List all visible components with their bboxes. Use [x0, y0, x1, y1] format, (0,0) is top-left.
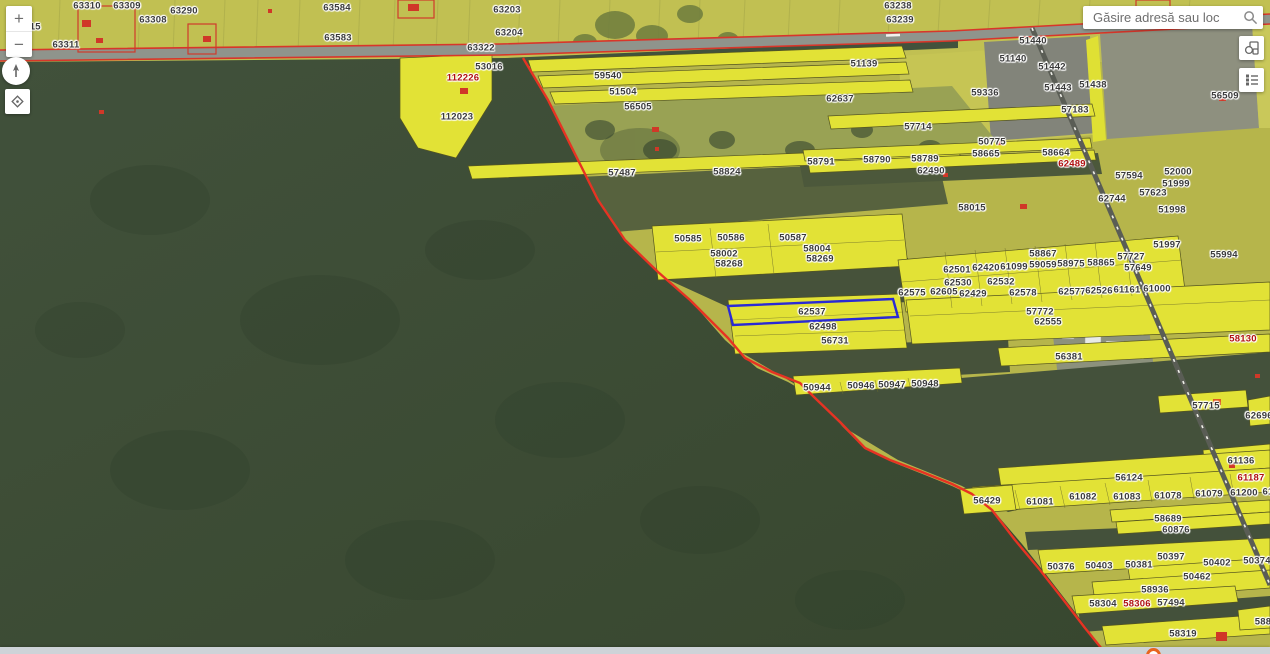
parcel-label[interactable]: 57715 — [1192, 401, 1219, 412]
parcel-label[interactable]: 58867 — [1029, 249, 1056, 260]
parcel-label[interactable]: 61136 — [1228, 456, 1255, 467]
parcel-label[interactable]: 57594 — [1115, 171, 1142, 182]
parcel-label[interactable]: 51504 — [609, 87, 636, 98]
legend-button[interactable] — [1239, 68, 1264, 92]
parcel-label[interactable]: 50944 — [803, 383, 830, 394]
parcel-label[interactable]: 59336 — [971, 88, 998, 99]
parcel-label[interactable]: 58865 — [1087, 258, 1114, 269]
parcel-label[interactable]: 56505 — [624, 102, 651, 113]
parcel-label[interactable]: 58936 — [1141, 585, 1168, 596]
parcel-label[interactable]: 58130 — [1229, 334, 1256, 345]
parcel-label[interactable]: 62420 — [972, 263, 999, 274]
parcel-label[interactable]: 63309 — [113, 1, 140, 12]
parcel-label[interactable]: 58015 — [958, 203, 985, 214]
parcel-label[interactable]: 51440 — [1019, 36, 1046, 47]
parcel-label[interactable]: 63322 — [467, 43, 494, 54]
attribution-bar — [0, 647, 1270, 654]
parcel-label[interactable]: 51443 — [1044, 83, 1071, 94]
parcel-label[interactable]: 58791 — [807, 157, 834, 168]
parcel-label[interactable]: 50947 — [878, 380, 905, 391]
parcel-label[interactable]: 61200 — [1230, 488, 1257, 499]
locate-diamond-icon — [10, 94, 25, 109]
parcel-label[interactable]: 61079 — [1195, 489, 1222, 500]
parcel-label[interactable]: 60876 — [1162, 525, 1189, 536]
parcel-label[interactable]: 58665 — [972, 149, 999, 160]
parcel-label[interactable]: 52000 — [1164, 167, 1191, 178]
parcel-label[interactable]: 55994 — [1210, 250, 1237, 261]
parcel-label[interactable]: 56509 — [1211, 91, 1238, 102]
parcel-label[interactable]: 58789 — [911, 154, 938, 165]
parcel-label[interactable]: 57714 — [904, 122, 931, 133]
parcel-label[interactable]: 51140 — [1000, 54, 1027, 65]
parcel-label[interactable]: 57183 — [1061, 105, 1088, 116]
compass-button[interactable] — [2, 57, 30, 85]
parcel-label[interactable]: 63584 — [323, 3, 350, 14]
parcel-label[interactable]: 58319 — [1169, 629, 1196, 640]
parcel-label[interactable]: 63583 — [324, 33, 351, 44]
parcel-label[interactable]: 57649 — [1124, 263, 1151, 274]
parcel-label[interactable]: 58306 — [1123, 599, 1150, 610]
parcel-label[interactable]: 58975 — [1057, 259, 1084, 270]
parcel-label[interactable]: 588 — [1255, 617, 1270, 628]
parcel-label[interactable]: 62501 — [943, 265, 970, 276]
parcel-label[interactable]: 63238 — [884, 1, 911, 12]
search-button[interactable] — [1237, 6, 1263, 29]
parcel-label[interactable]: 51139 — [851, 59, 878, 70]
zoom-out-button[interactable]: − — [6, 32, 32, 57]
zoom-control: + − — [6, 6, 32, 57]
parcel-label[interactable]: 51438 — [1079, 80, 1106, 91]
parcel-label[interactable]: 62537 — [798, 307, 825, 318]
parcel-label[interactable]: 59540 — [594, 71, 621, 82]
parcel-label[interactable]: 63204 — [495, 28, 522, 39]
parcel-label[interactable]: 57727 — [1117, 252, 1144, 263]
parcel-label[interactable]: 61000 — [1143, 284, 1170, 295]
parcel-label[interactable]: 53016 — [475, 62, 502, 73]
parcel-label[interactable]: 61081 — [1026, 497, 1053, 508]
parcel-label[interactable]: 63239 — [886, 15, 913, 26]
basemap-gallery-icon — [1244, 40, 1260, 56]
parcel-label[interactable]: 50585 — [674, 234, 701, 245]
north-arrow-icon — [8, 63, 24, 79]
parcel-label[interactable]: 58664 — [1042, 148, 1069, 159]
parcel-label[interactable]: 51442 — [1038, 62, 1065, 73]
map-graphics — [0, 0, 1270, 654]
parcel-label[interactable]: 63308 — [139, 15, 166, 26]
parcel-label[interactable]: 50775 — [978, 137, 1005, 148]
parcel-label[interactable]: 50402 — [1203, 558, 1230, 569]
parcel-label[interactable]: 51998 — [1158, 205, 1185, 216]
parcel-label[interactable]: 57487 — [608, 168, 635, 179]
parcel-label[interactable]: 61099 — [1000, 262, 1027, 273]
parcel-label[interactable]: 56381 — [1055, 352, 1082, 363]
locate-button[interactable] — [5, 89, 30, 114]
parcel-label[interactable]: 50587 — [779, 233, 806, 244]
parcel-label[interactable]: 50403 — [1085, 561, 1112, 572]
parcel-label[interactable]: 62489 — [1058, 159, 1085, 170]
parcel-label[interactable]: 61187 — [1238, 473, 1265, 484]
parcel-label[interactable]: 58790 — [863, 155, 890, 166]
parcel-label[interactable]: 61083 — [1113, 492, 1140, 503]
parcel-label[interactable]: 63311 — [53, 40, 80, 51]
legend-list-icon — [1244, 72, 1260, 88]
parcel-label[interactable]: 62526 — [1085, 286, 1112, 297]
parcel-label[interactable]: 59059 — [1029, 260, 1056, 271]
parcel-label[interactable]: 50381 — [1125, 560, 1152, 571]
parcel-label[interactable]: 62575 — [898, 288, 925, 299]
parcel-label[interactable]: 58268 — [715, 259, 742, 270]
map-application: 6331063309633156331163308632906358463583… — [0, 0, 1270, 654]
parcel-label[interactable]: 57494 — [1157, 598, 1184, 609]
parcel-label[interactable]: 112226 — [447, 73, 479, 84]
parcel-label[interactable]: 62696 — [1245, 411, 1270, 422]
parcel-label[interactable]: 50374 — [1243, 556, 1270, 567]
parcel-label[interactable]: 61161 — [1114, 285, 1141, 296]
parcel-label[interactable]: 58689 — [1154, 514, 1181, 525]
parcel-label[interactable]: 56731 — [821, 336, 848, 347]
parcel-label[interactable]: 50946 — [847, 381, 874, 392]
parcel-label[interactable]: 50376 — [1047, 562, 1074, 573]
parcel-label[interactable]: 56429 — [973, 496, 1000, 507]
parcel-label[interactable]: 57623 — [1139, 188, 1166, 199]
parcel-label[interactable]: 62532 — [987, 277, 1014, 288]
parcel-label[interactable]: 62555 — [1034, 317, 1061, 328]
parcel-label[interactable]: 112023 — [441, 112, 473, 123]
parcel-label[interactable]: 50462 — [1183, 572, 1210, 583]
parcel-label[interactable]: 56124 — [1115, 473, 1142, 484]
basemap-gallery-button[interactable] — [1239, 36, 1264, 60]
zoom-in-button[interactable]: + — [6, 6, 32, 31]
parcel-label[interactable]: 50586 — [717, 233, 744, 244]
search-input[interactable] — [1091, 9, 1237, 26]
parcel-label[interactable]: 62578 — [1009, 288, 1036, 299]
search-box — [1083, 6, 1263, 29]
parcel-label[interactable]: 58824 — [713, 167, 740, 178]
parcel-label[interactable]: 62429 — [959, 289, 986, 300]
parcel-label[interactable]: 62637 — [826, 94, 853, 105]
parcel-label[interactable]: 62605 — [930, 287, 957, 298]
parcel-label[interactable]: 61082 — [1069, 492, 1096, 503]
parcel-label[interactable]: 63310 — [73, 1, 100, 12]
parcel-label[interactable]: 62490 — [917, 166, 944, 177]
parcel-label[interactable]: 58269 — [806, 254, 833, 265]
parcel-label[interactable]: 61078 — [1154, 491, 1181, 502]
parcel-label[interactable]: 62744 — [1098, 194, 1125, 205]
parcel-label[interactable]: 58304 — [1089, 599, 1116, 610]
parcel-label[interactable]: 62498 — [809, 322, 836, 333]
parcel-label[interactable]: 50948 — [911, 379, 938, 390]
parcel-label[interactable]: 50397 — [1157, 552, 1184, 563]
parcel-label[interactable]: 51997 — [1153, 240, 1180, 251]
parcel-label[interactable]: 63203 — [493, 5, 520, 16]
search-icon — [1243, 10, 1258, 25]
parcel-label[interactable]: 62577 — [1058, 287, 1085, 298]
parcel-label[interactable]: 61 — [1263, 487, 1270, 498]
parcel-label[interactable]: 63290 — [170, 6, 197, 17]
